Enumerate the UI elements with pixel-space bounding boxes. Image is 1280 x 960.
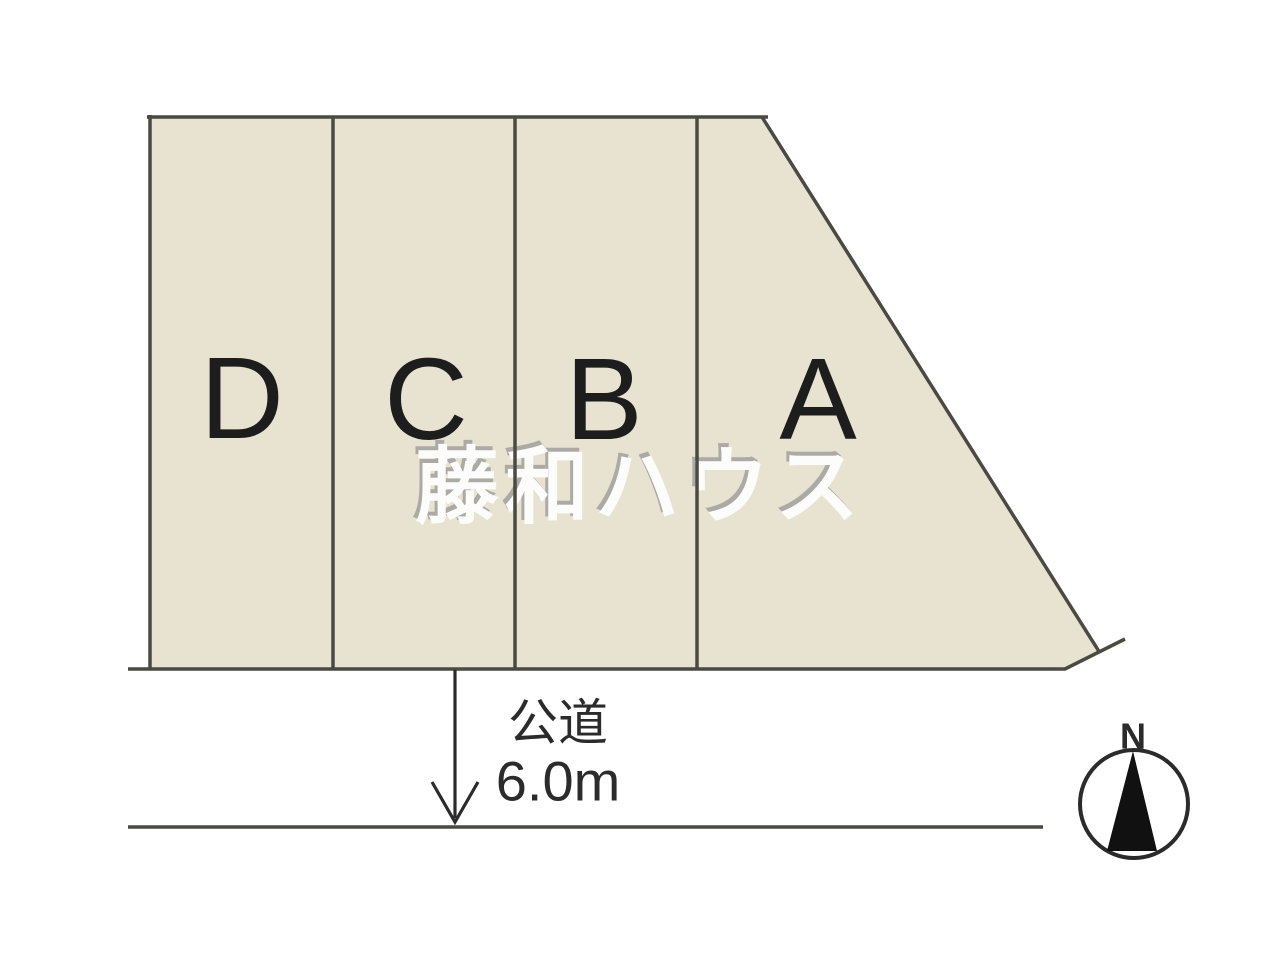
lot-d-label: D [200, 333, 284, 463]
lot-c-label: C [384, 334, 468, 464]
lot-b-label: B [565, 334, 642, 464]
lot-a-label: A [779, 334, 857, 464]
road-width-label: 6.0m [496, 750, 621, 813]
lot-plan-svg: 藤和ハウス 藤和ハウス D C B A 公道 6 [0, 0, 1280, 960]
compass-needle-icon [1107, 751, 1157, 851]
lot-layout-figure: 藤和ハウス 藤和ハウス D C B A 公道 6 [0, 0, 1280, 960]
road-arrow [432, 670, 478, 822]
road-name-label: 公道 [508, 695, 608, 751]
compass: N [1080, 716, 1188, 859]
road-annotation: 公道 6.0m [496, 695, 621, 813]
